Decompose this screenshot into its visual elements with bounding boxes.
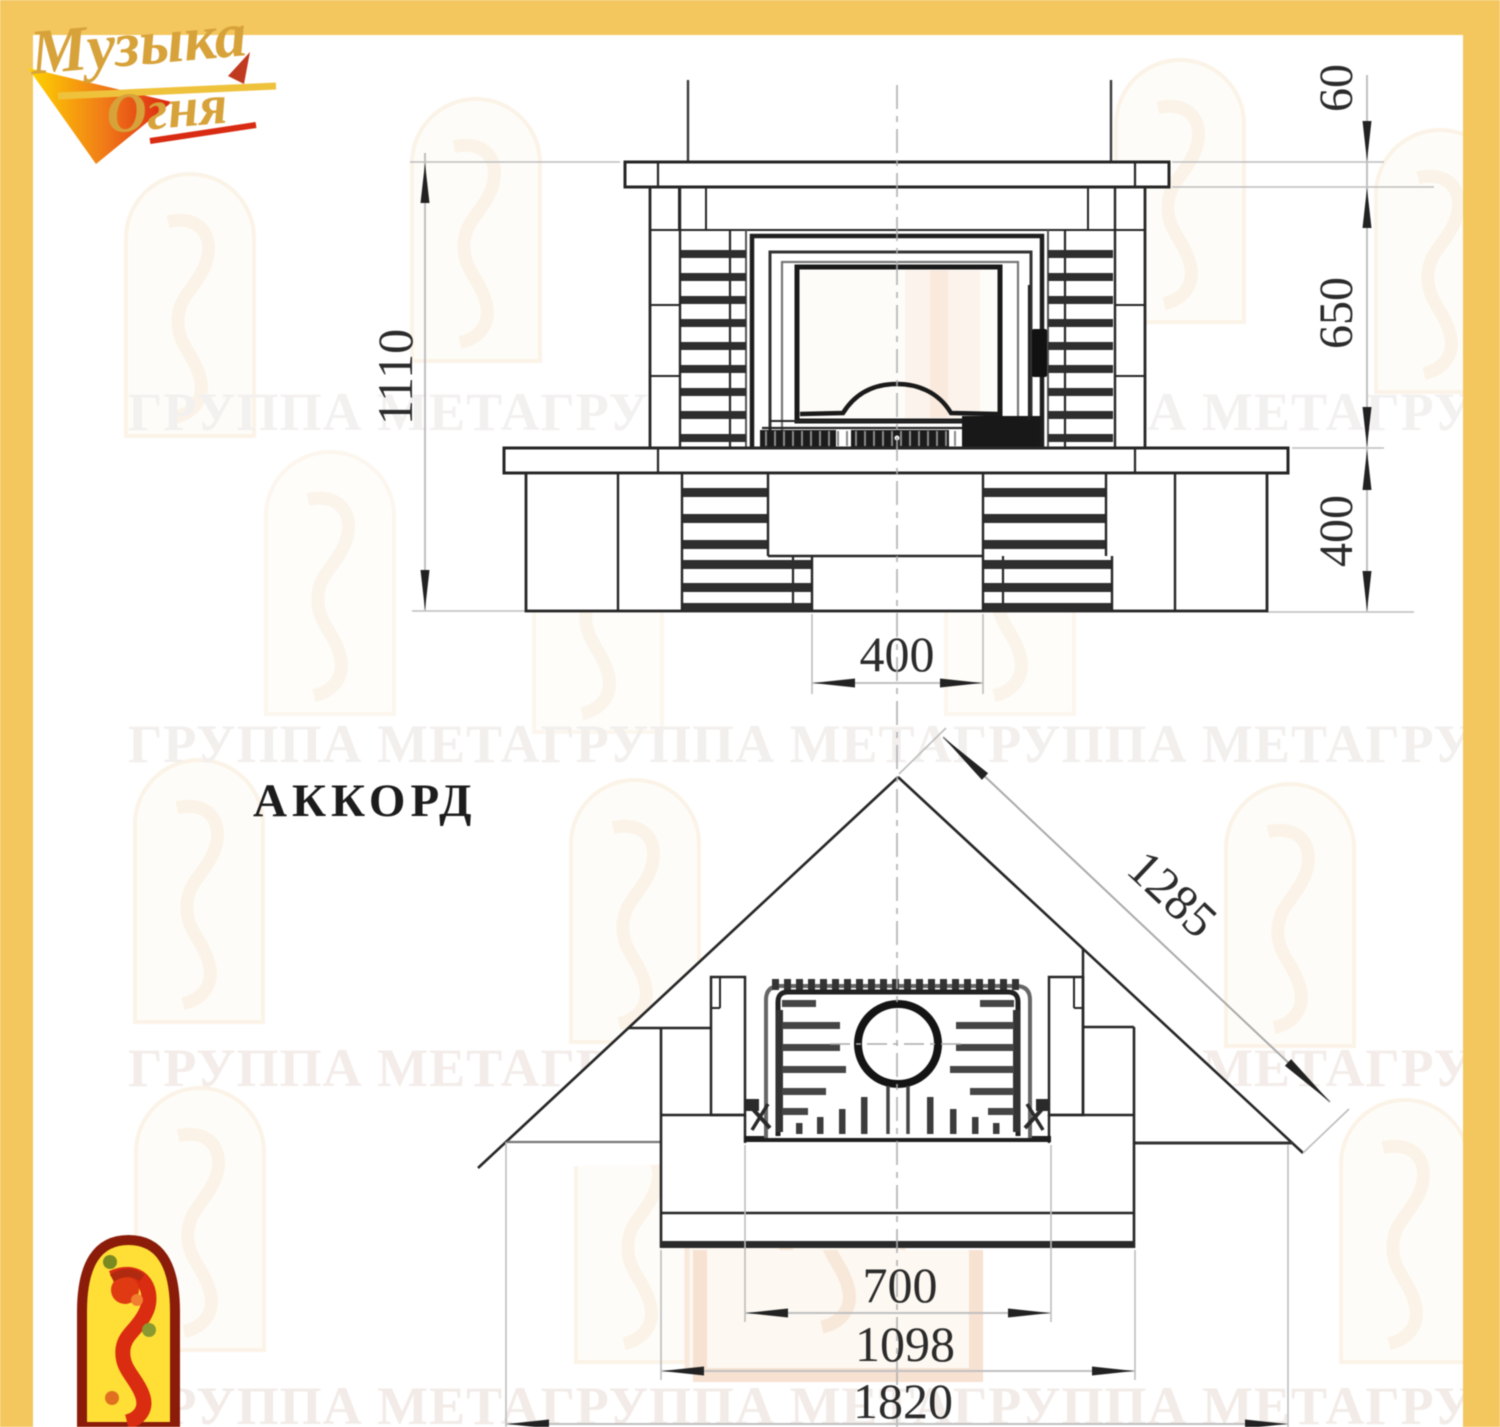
svg-text:1820: 1820 — [853, 1373, 953, 1427]
svg-text:АККОРД: АККОРД — [253, 775, 477, 827]
svg-text:ГРУППА МЕТАГРУППА МЕТАГРУППА М: ГРУППА МЕТАГРУППА МЕТАГРУППА МЕТАГРУППА … — [128, 714, 1500, 774]
svg-text:ГРУППА МЕТАГРУППА МЕТАГРУППА М: ГРУППА МЕТАГРУППА МЕТАГРУППА МЕТАГРУППА … — [128, 1376, 1500, 1427]
svg-text:700: 700 — [863, 1257, 938, 1313]
svg-text:1110: 1110 — [367, 329, 423, 425]
svg-text:400: 400 — [1310, 495, 1363, 567]
svg-text:Огня: Огня — [104, 74, 230, 146]
svg-text:650: 650 — [1310, 277, 1363, 349]
svg-text:1098: 1098 — [855, 1316, 955, 1372]
svg-text:60: 60 — [1310, 64, 1363, 112]
